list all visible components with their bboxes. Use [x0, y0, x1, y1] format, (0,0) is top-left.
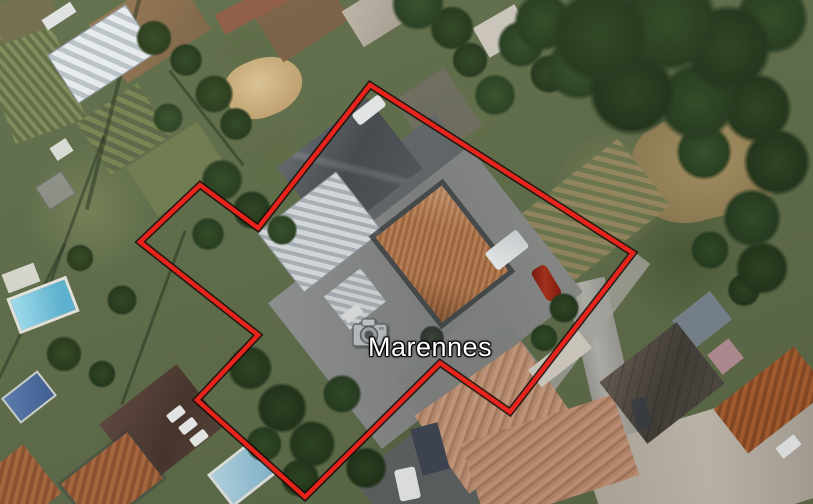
- property-boundary-outline: [140, 85, 633, 497]
- satellite-map-canvas[interactable]: Marennes: [0, 0, 813, 504]
- place-label[interactable]: Marennes: [368, 332, 492, 363]
- boundary-overlay: [0, 0, 813, 504]
- property-boundary[interactable]: [140, 85, 633, 497]
